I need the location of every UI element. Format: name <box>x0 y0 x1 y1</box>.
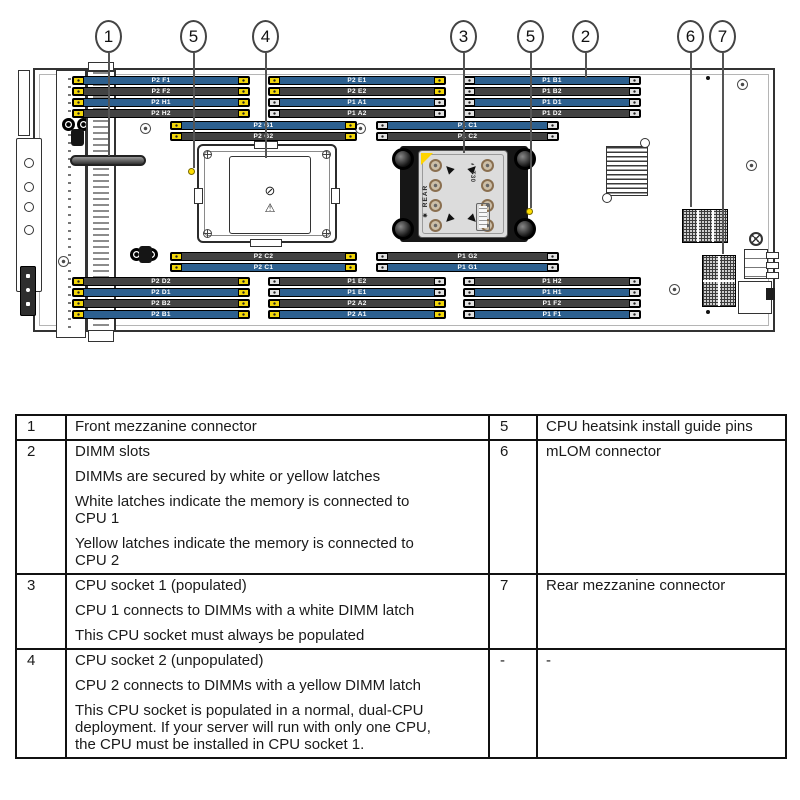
board-dot <box>706 310 710 314</box>
callout-legend-table: 1 Front mezzanine connector 5 CPU heatsi… <box>15 414 787 759</box>
dimm-latch-icon <box>629 77 640 84</box>
dimm-latch-icon <box>464 278 475 285</box>
chipset-heatsink <box>606 146 648 196</box>
dimm-latch-icon <box>269 110 280 117</box>
front-panel-rivets <box>68 78 71 328</box>
dimm-slot-label: P1 D1 <box>475 99 629 106</box>
heatsink-screw <box>429 159 442 172</box>
description-left: CPU socket 1 (populated)CPU 1 connects t… <box>66 574 489 649</box>
dimm-slot: P2 G2 <box>170 132 357 141</box>
description-right: mLOM connector <box>537 440 786 574</box>
dimm-latch-icon <box>547 253 558 260</box>
dimm-latch-icon <box>629 88 640 95</box>
warning-icon: ⚠︎ <box>230 201 310 215</box>
dimm-slot-label: P1 C2 <box>388 133 547 140</box>
callout-number-left: 1 <box>16 415 66 440</box>
heatsink-screw <box>429 199 442 212</box>
dimm-slot-label: P2 E1 <box>280 77 434 84</box>
dimm-slot: P1 F1 <box>463 310 641 319</box>
dimm-slot: P1 A2 <box>268 109 446 118</box>
dimm-slot: P2 F1 <box>72 76 250 85</box>
heatsink-tab <box>602 193 612 203</box>
dimm-slot: P2 E2 <box>268 87 446 96</box>
screw-hole <box>737 79 748 90</box>
dimm-latch-icon <box>464 289 475 296</box>
callout-bubble: 1 <box>95 20 122 53</box>
dimm-latch-icon <box>464 300 475 307</box>
callout-leader-line <box>265 53 267 158</box>
callout-number-right: - <box>489 649 537 758</box>
dimm-latch-icon <box>434 300 445 307</box>
dimm-slot-label: P2 C2 <box>182 253 345 260</box>
dimm-slot: P1 D2 <box>463 109 641 118</box>
dimm-latch-icon <box>73 289 84 296</box>
dimm-latch-icon <box>73 88 84 95</box>
connector-tooth <box>766 252 779 259</box>
dimm-latch-icon <box>434 278 445 285</box>
dimm-latch-icon <box>238 311 249 318</box>
dimm-latch-icon <box>547 264 558 271</box>
dimm-latch-icon <box>464 99 475 106</box>
socket-screw <box>322 150 331 159</box>
callout-leader-line <box>193 53 195 168</box>
callout-number-right: 6 <box>489 440 537 574</box>
dimm-latch-icon <box>73 311 84 318</box>
ladder-cap-top <box>88 62 114 71</box>
dimm-slot-label: P2 C1 <box>182 264 345 271</box>
dimm-latch-icon <box>269 289 280 296</box>
dimm-latch-icon <box>629 278 640 285</box>
callout-number-left: 2 <box>16 440 66 574</box>
dimm-slot-label: P2 B2 <box>84 300 238 307</box>
dimm-slot-label: P1 F1 <box>475 311 629 318</box>
heatsink-post <box>514 218 536 240</box>
dimm-slot: P1 H1 <box>463 288 641 297</box>
heatsink-post <box>392 218 414 240</box>
dimm-latch-icon <box>345 122 356 129</box>
dimm-latch-icon <box>73 110 84 117</box>
callout-bubble: 3 <box>450 20 477 53</box>
dimm-slot: P1 H2 <box>463 277 641 286</box>
heatsink-screw <box>481 159 494 172</box>
dimm-slot: P1 E1 <box>268 288 446 297</box>
callout-bubble: 7 <box>709 20 736 53</box>
callout-leader-line <box>585 53 587 78</box>
dimm-latch-icon <box>464 311 475 318</box>
dimm-latch-icon <box>345 264 356 271</box>
dimm-slot: P1 D1 <box>463 98 641 107</box>
socket-screw <box>203 229 212 238</box>
dimm-slot-label: P1 H2 <box>475 278 629 285</box>
front-led-panel <box>20 266 36 316</box>
dimm-latch-icon <box>238 77 249 84</box>
callout-bubble: 4 <box>252 20 279 53</box>
ladder-cap-bottom <box>88 330 114 342</box>
dimm-latch-icon <box>73 300 84 307</box>
dimm-latch-icon <box>629 289 640 296</box>
dimm-slot: P1 B1 <box>463 76 641 85</box>
dimm-latch-icon <box>345 253 356 260</box>
description-right: - <box>537 649 786 758</box>
dimm-latch-icon <box>377 122 388 129</box>
description-left: Front mezzanine connector <box>66 415 489 440</box>
callout-bubble: 2 <box>572 20 599 53</box>
dimm-latch-icon <box>434 110 445 117</box>
dimm-slot-label: P1 A1 <box>280 99 434 106</box>
heatsink-screw <box>429 219 442 232</box>
dimm-slot: P2 D2 <box>72 277 250 286</box>
dimm-latch-icon <box>171 253 182 260</box>
dimm-slot: P1 F2 <box>463 299 641 308</box>
dimm-latch-icon <box>547 122 558 129</box>
screw-hole <box>58 256 69 267</box>
dimm-latch-icon <box>238 99 249 106</box>
dimm-latch-icon <box>269 77 280 84</box>
dimm-slot: P1 B2 <box>463 87 641 96</box>
dimm-latch-icon <box>171 122 182 129</box>
dimm-slot: P2 A1 <box>268 310 446 319</box>
socket-screw <box>322 229 331 238</box>
dimm-latch-icon <box>434 289 445 296</box>
dimm-latch-icon <box>73 99 84 106</box>
legend-row: 2 DIMM slotsDIMMs are secured by white o… <box>16 440 786 574</box>
dimm-latch-icon <box>434 77 445 84</box>
callout-number-left: 4 <box>16 649 66 758</box>
torx-icon: ⌁ <box>469 161 475 169</box>
description-right: CPU heatsink install guide pins <box>537 415 786 440</box>
dimm-latch-icon <box>269 88 280 95</box>
dimm-slot: P2 B1 <box>72 310 250 319</box>
dimm-slot: P2 F2 <box>72 87 250 96</box>
dimm-slot-label: P2 A2 <box>280 300 434 307</box>
heatsink-post <box>514 148 536 170</box>
heatsink-tab <box>640 138 650 148</box>
dimm-latch-icon <box>629 311 640 318</box>
callout-bubble: 6 <box>677 20 704 53</box>
dimm-slot: P1 C2 <box>376 132 559 141</box>
description-left: CPU socket 2 (unpopulated)CPU 2 connects… <box>66 649 489 758</box>
dimm-latch-icon <box>629 300 640 307</box>
dimm-latch-icon <box>377 253 388 260</box>
dimm-slot: P2 E1 <box>268 76 446 85</box>
connector-tooth <box>766 272 779 279</box>
dimm-slot-label: P2 E2 <box>280 88 434 95</box>
dimm-latch-icon <box>171 264 182 271</box>
heatsink-screw <box>481 179 494 192</box>
dimm-slot-label: P2 G1 <box>182 122 345 129</box>
dimm-slot-label: P1 G2 <box>388 253 547 260</box>
dimm-slot-label: P2 D2 <box>84 278 238 285</box>
dimm-slot: P2 H2 <box>72 109 250 118</box>
dimm-slot-label: P1 A2 <box>280 110 434 117</box>
dimm-latch-icon <box>73 278 84 285</box>
dimm-slot-label: P2 A1 <box>280 311 434 318</box>
motherboard-diagram: ⊘ ⚠︎ ✷ R <box>0 0 800 400</box>
front-panel-strip <box>18 70 30 136</box>
dimm-latch-icon <box>238 88 249 95</box>
screw-icon: ⊘ <box>230 183 310 199</box>
dimm-latch-icon <box>464 88 475 95</box>
description-left: DIMM slotsDIMMs are secured by white or … <box>66 440 489 574</box>
callout-bubble: 5 <box>517 20 544 53</box>
socket-bottom-tab <box>250 239 282 247</box>
rear-mezzanine-connector <box>702 255 736 307</box>
dimm-slot: P1 A1 <box>268 98 446 107</box>
dimm-latch-icon <box>269 300 280 307</box>
screw-hole <box>746 160 757 171</box>
bracket-hole <box>24 202 34 212</box>
dimm-latch-icon <box>345 133 356 140</box>
dimm-slot: P2 B2 <box>72 299 250 308</box>
bracket-hole <box>24 182 34 192</box>
dimm-slot-label: P2 D1 <box>84 289 238 296</box>
dimm-latch-icon <box>434 88 445 95</box>
dimm-slot: P2 G1 <box>170 121 357 130</box>
heatsink-screw <box>429 179 442 192</box>
front-mezzanine-connector <box>70 155 146 166</box>
connector-tooth <box>766 262 779 269</box>
callout-number-right: 5 <box>489 415 537 440</box>
dimm-latch-icon <box>269 311 280 318</box>
star-icon: ✷ <box>422 210 429 219</box>
dimm-slot: P2 C2 <box>170 252 357 261</box>
dimm-latch-icon <box>238 278 249 285</box>
dimm-slot-label: P1 G1 <box>388 264 547 271</box>
dimm-slot: P2 A2 <box>268 299 446 308</box>
callout-leader-line <box>722 53 724 254</box>
dimm-slot-label: P1 B2 <box>475 88 629 95</box>
dimm-latch-icon <box>629 110 640 117</box>
socket-side-tab <box>194 188 203 204</box>
connector-key <box>766 288 775 300</box>
dimm-slot: P1 G1 <box>376 263 559 272</box>
dimm-latch-icon <box>377 133 388 140</box>
dimm-slot-label: P2 B1 <box>84 311 238 318</box>
dimm-slot-label: P1 C1 <box>388 122 547 129</box>
legend-row: 4 CPU socket 2 (unpopulated)CPU 2 connec… <box>16 649 786 758</box>
dimm-slot: P2 D1 <box>72 288 250 297</box>
dimm-latch-icon <box>434 99 445 106</box>
socket-cover-plate: ⊘ ⚠︎ <box>229 156 311 234</box>
dimm-latch-icon <box>238 300 249 307</box>
torx-size-label: ⌁ T30 <box>469 161 476 187</box>
screw-hole <box>140 123 151 134</box>
heatsink-plate: ✷ REAR ⌁ T30 <box>418 150 508 238</box>
dimm-slot: P1 C1 <box>376 121 559 130</box>
bracket-hole <box>24 225 34 235</box>
dimm-slot-label: P1 E2 <box>280 278 434 285</box>
description-right: Rear mezzanine connector <box>537 574 786 649</box>
dimm-latch-icon <box>73 77 84 84</box>
callout-number-right: 7 <box>489 574 537 649</box>
dimm-slot-label: P1 D2 <box>475 110 629 117</box>
captive-screw <box>749 232 763 246</box>
dimm-latch-icon <box>434 311 445 318</box>
standoff-post <box>130 246 162 276</box>
dimm-slot: P2 C1 <box>170 263 357 272</box>
dimm-slot: P1 G2 <box>376 252 559 261</box>
callout-leader-line <box>463 53 465 153</box>
dimm-latch-icon <box>238 110 249 117</box>
dimm-slot: P2 H1 <box>72 98 250 107</box>
cpu-socket-1-heatsink: ✷ REAR ⌁ T30 <box>392 142 538 246</box>
socket-screw <box>203 150 212 159</box>
socket-side-tab <box>331 188 340 204</box>
edge-connector-upper <box>744 249 768 279</box>
dimm-slot: P1 E2 <box>268 277 446 286</box>
board-dot <box>706 76 710 80</box>
dimm-slot-label: P1 F2 <box>475 300 629 307</box>
heatsink-guide-pin <box>526 208 533 215</box>
callout-leader-line <box>530 53 532 208</box>
dimm-latch-icon <box>547 133 558 140</box>
bracket-hole <box>24 158 34 168</box>
rear-label: ✷ REAR <box>422 175 430 219</box>
callout-leader-line <box>108 53 110 156</box>
dimm-slot-label: P1 E1 <box>280 289 434 296</box>
heatsink-spec-label <box>476 203 490 231</box>
screw-hole <box>669 284 680 295</box>
legend-row: 3 CPU socket 1 (populated)CPU 1 connects… <box>16 574 786 649</box>
dimm-slot-label: P1 B1 <box>475 77 629 84</box>
callout-number-left: 3 <box>16 574 66 649</box>
callout-bubble: 5 <box>180 20 207 53</box>
dimm-latch-icon <box>269 278 280 285</box>
dimm-latch-icon <box>377 264 388 271</box>
dimm-latch-icon <box>238 289 249 296</box>
dimm-latch-icon <box>269 99 280 106</box>
cpu-socket-2: ⊘ ⚠︎ <box>197 144 337 243</box>
dimm-latch-icon <box>464 77 475 84</box>
legend-row: 1 Front mezzanine connector 5 CPU heatsi… <box>16 415 786 440</box>
heatsink-guide-pin <box>188 168 195 175</box>
dimm-latch-icon <box>464 110 475 117</box>
callout-leader-line <box>690 53 692 207</box>
dimm-slot-label: P2 G2 <box>182 133 345 140</box>
dimm-slot-label: P1 H1 <box>475 289 629 296</box>
heatsink-post <box>392 148 414 170</box>
dimm-latch-icon <box>629 99 640 106</box>
dimm-latch-icon <box>171 133 182 140</box>
